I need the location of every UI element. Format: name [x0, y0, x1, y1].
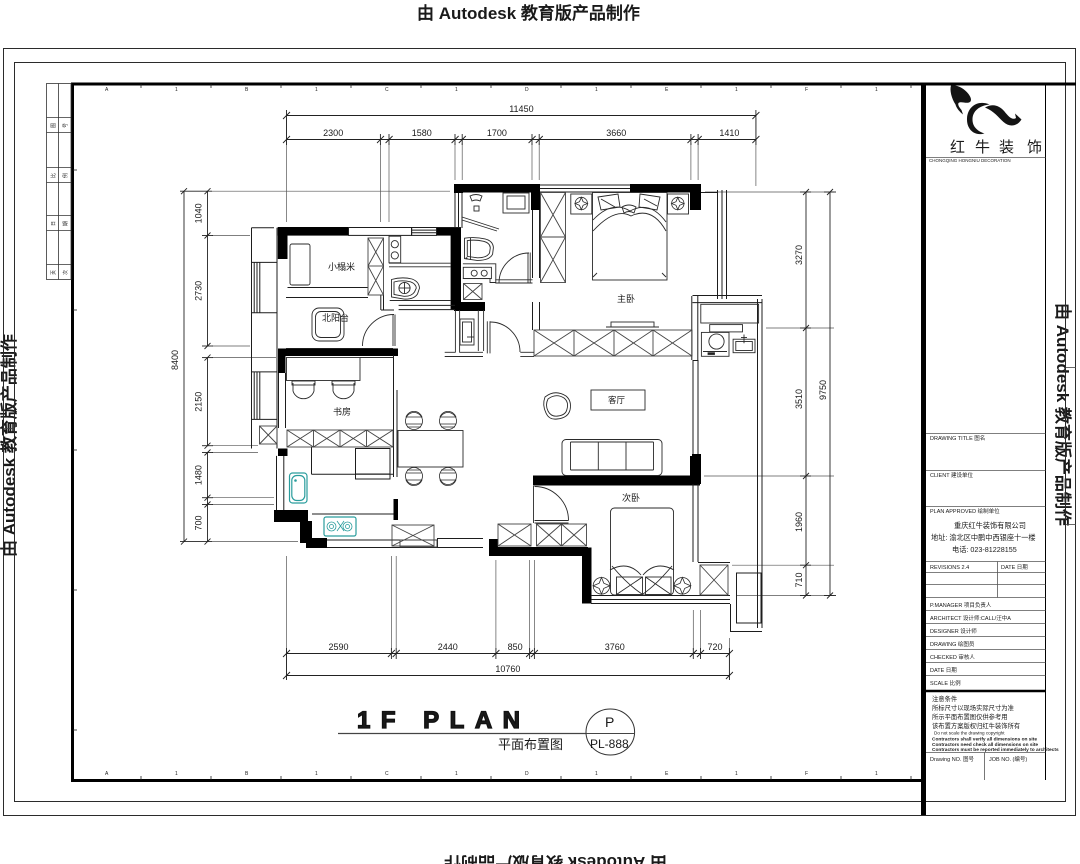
svg-text:所示平面布置图仅供参考用: 所示平面布置图仅供参考用 — [932, 712, 1008, 721]
svg-text:DRAWING TITLE 图名: DRAWING TITLE 图名 — [930, 434, 985, 442]
svg-text:CLIENT 建设单位: CLIENT 建设单位 — [930, 471, 973, 479]
svg-text:P.MANAGER 项目负责人: P.MANAGER 项目负责人 — [930, 601, 992, 609]
svg-text:F: F — [805, 771, 808, 777]
svg-text:电话: 023-81228155: 电话: 023-81228155 — [952, 545, 1017, 554]
svg-text:2150: 2150 — [194, 392, 204, 412]
svg-text:地址: 渝北区中鹏中西银座十一楼: 地址: 渝北区中鹏中西银座十一楼 — [931, 533, 1036, 542]
svg-text:由 Autodesk 教育版产品制作: 由 Autodesk 教育版产品制作 — [417, 3, 640, 23]
svg-text:注意条件: 注意条件 — [932, 694, 957, 703]
svg-text:10760: 10760 — [495, 664, 520, 674]
svg-text:由 Autodesk 教育版产品制作: 由 Autodesk 教育版产品制作 — [1053, 303, 1073, 526]
svg-text:1: 1 — [455, 771, 458, 777]
svg-text:8400: 8400 — [170, 350, 180, 370]
svg-text:小榻米: 小榻米 — [328, 261, 355, 272]
svg-text:720: 720 — [707, 642, 722, 652]
svg-text:CHONGQING HONGNIU DECORATION: CHONGQING HONGNIU DECORATION — [929, 158, 1011, 163]
svg-text:1: 1 — [735, 771, 738, 777]
svg-text:图: 图 — [51, 123, 57, 128]
svg-text:期: 期 — [63, 221, 69, 226]
svg-text:1: 1 — [875, 87, 878, 93]
svg-text:由 Autodesk 教育版产品制作: 由 Autodesk 教育版产品制作 — [0, 334, 19, 557]
svg-text:DRAWING 绘图员: DRAWING 绘图员 — [930, 640, 975, 648]
svg-text:2590: 2590 — [328, 642, 348, 652]
svg-text:D: D — [525, 87, 529, 93]
svg-text:2730: 2730 — [194, 281, 204, 301]
svg-text:P: P — [605, 714, 614, 730]
svg-text:次: 次 — [62, 270, 69, 275]
svg-text:1F PLAN: 1F PLAN — [357, 707, 531, 734]
svg-text:CHECKED 审核人: CHECKED 审核人 — [930, 653, 975, 661]
svg-text:PL-888: PL-888 — [590, 737, 629, 751]
svg-text:装: 装 — [999, 139, 1014, 156]
svg-text:1040: 1040 — [194, 203, 204, 223]
svg-text:2300: 2300 — [323, 128, 343, 138]
svg-text:例: 例 — [62, 173, 69, 178]
svg-text:1: 1 — [595, 771, 598, 777]
svg-text:PLAN APPROVED 绘制单位: PLAN APPROVED 绘制单位 — [930, 507, 1000, 515]
svg-text:700: 700 — [194, 515, 204, 530]
svg-text:DATE 日期: DATE 日期 — [930, 667, 957, 674]
svg-text:DATE 日期: DATE 日期 — [1001, 564, 1028, 571]
svg-text:1: 1 — [315, 771, 318, 777]
svg-text:REVISIONS 2.4: REVISIONS 2.4 — [930, 565, 969, 571]
svg-text:1: 1 — [875, 771, 878, 777]
svg-text:平面布置图: 平面布置图 — [498, 737, 563, 752]
svg-text:1410: 1410 — [719, 128, 739, 138]
svg-text:JOB NO. (编号): JOB NO. (编号) — [989, 755, 1027, 763]
svg-text:日: 日 — [51, 221, 57, 226]
svg-text:饰: 饰 — [1027, 139, 1042, 156]
svg-text:Drawing NO. 图号: Drawing NO. 图号 — [930, 755, 975, 763]
svg-text:1: 1 — [175, 771, 178, 777]
svg-text:1960: 1960 — [794, 512, 804, 532]
svg-text:书房: 书房 — [333, 406, 351, 417]
svg-text:比: 比 — [50, 173, 57, 178]
svg-text:该布置方案版权归红牛装饰所有: 该布置方案版权归红牛装饰所有 — [932, 721, 1020, 730]
svg-text:所标尺寸以现场实际尺寸为准: 所标尺寸以现场实际尺寸为准 — [932, 703, 1014, 712]
svg-text:1: 1 — [315, 87, 318, 93]
svg-text:牛: 牛 — [975, 139, 990, 156]
svg-text:1700: 1700 — [487, 128, 507, 138]
svg-text:3660: 3660 — [606, 128, 626, 138]
svg-text:Contractors shall verify all d: Contractors shall verify all dimensions … — [932, 737, 1037, 743]
svg-text:客厅: 客厅 — [608, 395, 626, 405]
svg-text:C: C — [385, 771, 389, 777]
svg-text:2440: 2440 — [438, 642, 458, 652]
svg-text:11450: 11450 — [509, 104, 533, 114]
svg-text:Do not scale the drawing copyr: Do not scale the drawing copyright — [934, 731, 1005, 736]
svg-text:次卧: 次卧 — [622, 492, 640, 503]
svg-text:1580: 1580 — [412, 128, 432, 138]
svg-text:页: 页 — [51, 270, 57, 275]
svg-text:号: 号 — [63, 123, 69, 128]
svg-text:3510: 3510 — [794, 389, 804, 409]
svg-text:由 Autodesk 教育版产品制作: 由 Autodesk 教育版产品制作 — [444, 853, 667, 864]
svg-text:C: C — [385, 87, 389, 93]
svg-text:9750: 9750 — [818, 380, 828, 400]
svg-text:北阳台: 北阳台 — [322, 312, 349, 323]
svg-text:1480: 1480 — [194, 465, 204, 485]
svg-text:710: 710 — [794, 572, 804, 587]
svg-text:ARCHITECT 设计师:CALL/汪中A: ARCHITECT 设计师:CALL/汪中A — [930, 614, 1011, 622]
svg-text:主卧: 主卧 — [617, 293, 635, 304]
svg-text:D: D — [525, 771, 529, 777]
svg-text:1: 1 — [175, 87, 178, 93]
svg-text:Contractors must be reported i: Contractors must be reported immediately… — [932, 747, 1059, 753]
svg-text:1: 1 — [455, 87, 458, 93]
svg-text:1: 1 — [595, 87, 598, 93]
svg-text:1: 1 — [735, 87, 738, 93]
svg-text:F: F — [805, 87, 808, 93]
svg-text:重庆红牛装饰有限公司: 重庆红牛装饰有限公司 — [954, 521, 1026, 530]
svg-text:SCALE 比例: SCALE 比例 — [930, 679, 961, 687]
svg-text:红: 红 — [950, 139, 965, 156]
svg-text:3760: 3760 — [605, 642, 625, 652]
svg-text:3270: 3270 — [794, 245, 804, 265]
svg-text:850: 850 — [508, 642, 523, 652]
svg-text:DESIGNER 设计师: DESIGNER 设计师 — [930, 627, 977, 635]
